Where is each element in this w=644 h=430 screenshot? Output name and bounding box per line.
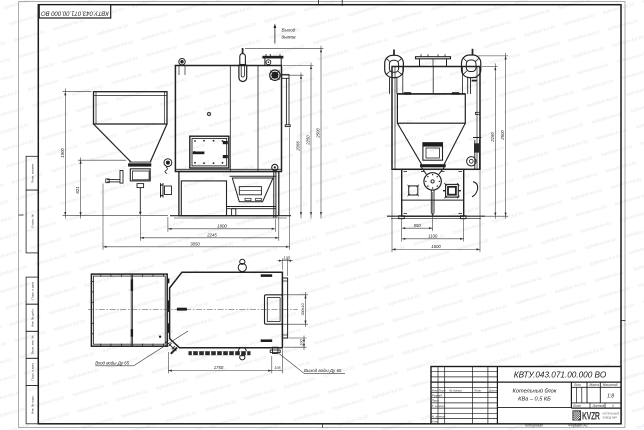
svg-text:100: 100	[300, 339, 304, 346]
svg-text:ЗАВОД КВР: ЗАВОД КВР	[603, 415, 618, 419]
svg-text:КВТУ.043.071.00.000 ВО: КВТУ.043.071.00.000 ВО	[41, 9, 109, 15]
svg-text:КОТЕЛЬНЫЙ: КОТЕЛЬНЫЙ	[603, 412, 619, 416]
svg-text:2160: 2160	[490, 132, 495, 143]
svg-text:1100: 1100	[428, 233, 438, 238]
svg-text:1800: 1800	[217, 223, 227, 228]
svg-text:Утв.: Утв.	[432, 420, 439, 424]
svg-text:2245: 2245	[206, 232, 217, 237]
svg-text:Перв. примен.: Перв. примен.	[31, 163, 35, 183]
svg-text:Инв. № дубл.: Инв. № дубл.	[31, 308, 35, 327]
svg-text:Взам. инв. №: Взам. инв. №	[31, 335, 35, 354]
svg-text:Инв. № подл.: Инв. № подл.	[31, 395, 35, 414]
svg-text:2086: 2086	[296, 141, 301, 152]
svg-text:1600: 1600	[431, 244, 441, 249]
svg-text:Пров.: Пров.	[432, 399, 440, 403]
svg-text:Справ. №: Справ. №	[31, 213, 35, 227]
svg-text:КВТУ.043.071.00.000 ВО: КВТУ.043.071.00.000 ВО	[514, 371, 607, 380]
svg-text:1: 1	[612, 404, 614, 408]
svg-text:120: 120	[283, 255, 291, 260]
svg-text:Масса: Масса	[590, 383, 600, 387]
svg-text:№ докум.: № докум.	[449, 388, 462, 392]
svg-text:Изм Лист: Изм Лист	[432, 388, 447, 392]
svg-text:Выход воды Ду 65: Выход воды Ду 65	[304, 368, 342, 373]
svg-text:КВа – 0,5 КБ: КВа – 0,5 КБ	[518, 397, 551, 403]
svg-text:Лит.: Лит.	[573, 383, 582, 387]
svg-text:1750: 1750	[214, 365, 224, 370]
svg-text:821: 821	[75, 186, 80, 194]
svg-text:1:8: 1:8	[607, 394, 614, 400]
svg-text:Лист: Лист	[572, 404, 582, 408]
svg-text:1900: 1900	[60, 148, 65, 158]
svg-text:3050: 3050	[190, 241, 200, 246]
svg-text:Вход воды Ду 65: Вход воды Ду 65	[95, 361, 130, 366]
svg-text:дымов: дымов	[282, 35, 297, 40]
svg-text:550: 550	[414, 223, 422, 228]
svg-text:KVZR: KVZR	[582, 411, 600, 423]
svg-text:Выход: Выход	[282, 28, 296, 33]
svg-text:Подп.: Подп.	[474, 388, 482, 392]
svg-text:2500: 2500	[500, 130, 505, 141]
svg-text:105: 105	[275, 366, 281, 370]
svg-text:Дата: Дата	[488, 388, 497, 392]
svg-text:Разраб.: Разраб.	[432, 394, 443, 398]
svg-text:Подп. и дата: Подп. и дата	[31, 281, 35, 299]
svg-text:Т. контр.: Т. контр.	[432, 404, 445, 408]
svg-text:2250: 2250	[306, 135, 311, 146]
svg-text:Подп. и дата: Подп. и дата	[31, 363, 35, 381]
svg-text:Копировал: Копировал	[525, 423, 543, 427]
svg-text:300±10: 300±10	[301, 304, 305, 316]
svg-text:Котельный блок: Котельный блок	[513, 388, 557, 395]
svg-text:Н. контр.: Н. контр.	[432, 414, 446, 418]
svg-text:2500: 2500	[316, 128, 321, 139]
svg-text:Формат А2: Формат А2	[568, 423, 588, 427]
svg-text:Листов: Листов	[592, 404, 605, 408]
svg-text:Масштаб: Масштаб	[603, 383, 618, 387]
